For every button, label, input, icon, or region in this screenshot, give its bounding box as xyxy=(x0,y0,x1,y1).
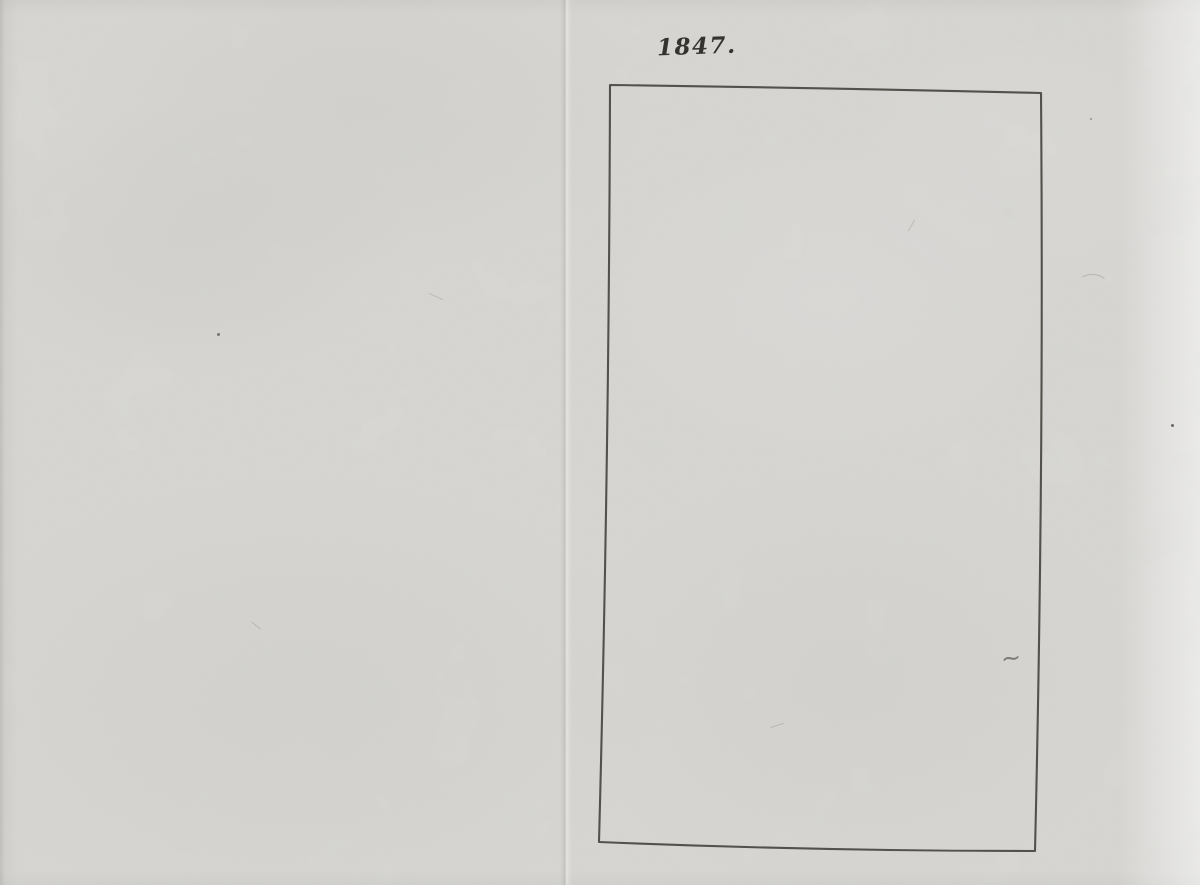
scanned-album-page: 1847. ~ xyxy=(0,0,1200,885)
empty-picture-frame xyxy=(0,0,1200,885)
paper-speck xyxy=(217,333,220,336)
paper-speck xyxy=(1171,424,1174,427)
tilde-pencil-mark: ~ xyxy=(1000,645,1023,671)
year-label: 1847. xyxy=(657,32,737,62)
paper-speck xyxy=(1090,118,1092,120)
frame-outline xyxy=(599,85,1042,851)
